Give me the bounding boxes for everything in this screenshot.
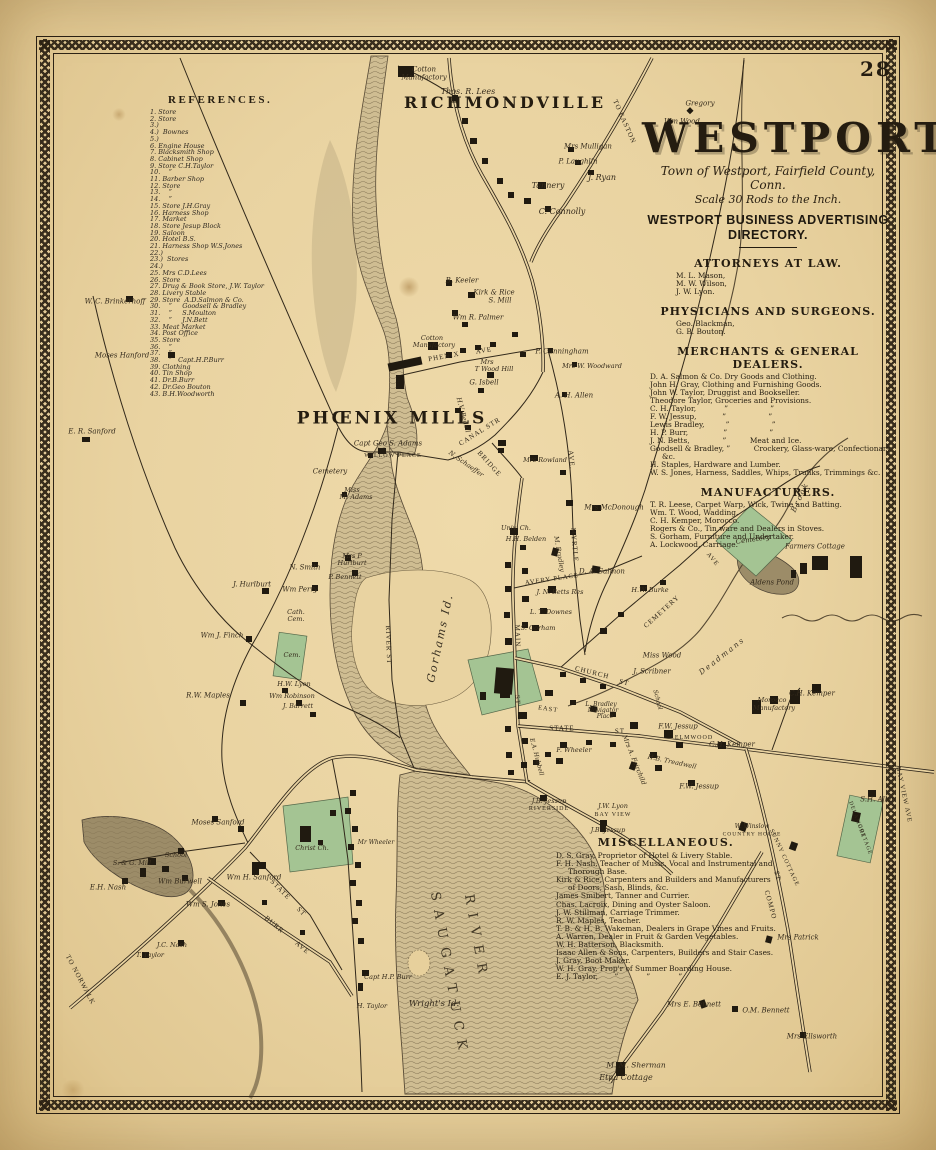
page-number: 28 — [860, 57, 892, 81]
reference-item: 23.) Stores — [150, 256, 350, 263]
map-label: Mrs Mulligan — [564, 144, 612, 151]
map-label: Etna Cottage — [599, 1074, 653, 1082]
directory-entry: A. Lockwood, Carriage. — [650, 541, 894, 549]
map-label: S. Gorham — [521, 625, 556, 632]
map-label: MAIN — [513, 625, 521, 648]
references-block: REFERENCES. 1. Store2. Store3.)4.) Bowne… — [150, 94, 350, 397]
map-label: M. M. Sherman — [606, 1061, 665, 1069]
miscellaneous-heading: MISCELLANEOUS. — [556, 836, 776, 849]
map-label: Kirk & Rice — [473, 290, 514, 297]
map-label: ST — [295, 906, 307, 918]
map-label: Gorhams Id. — [425, 592, 455, 683]
map-label: RIVER ST — [384, 625, 392, 664]
map-label: H.H. Belden — [506, 536, 546, 543]
map-label: Cem. — [283, 652, 300, 659]
map-label: School — [651, 689, 662, 710]
references-heading: REFERENCES. — [168, 94, 350, 106]
map-label: PHENIX — [428, 351, 460, 363]
map-label: ST — [513, 695, 520, 705]
section-heading: MERCHANTS & GENERAL DEALERS. — [642, 345, 894, 371]
map-label: E. R. Sanford — [68, 429, 115, 436]
map-label: CEMETERY — [643, 594, 681, 630]
section-heading: PHYSICIANS AND SURGEONS. — [642, 305, 894, 318]
map-label: Miss Wood — [643, 653, 681, 660]
map-subtitle: Town of Westport, Fairfield County, Conn… — [642, 164, 894, 192]
directory-section-manufacturers: MANUFACTURERS. T. R. Leese, Carpet Warp,… — [642, 486, 894, 549]
map-label: Christ Ch. — [295, 845, 329, 852]
reference-item: 12. Store — [150, 183, 350, 190]
map-label: Wright's Id. — [409, 1000, 459, 1009]
section-entries: D. A. Salmon & Co. Dry Goods and Clothin… — [642, 373, 894, 477]
map-label: Mrs Rowland — [523, 457, 567, 464]
map-label: N. Smith — [289, 565, 320, 572]
miscellaneous-block: MISCELLANEOUS. D. S. Gray, Proprietor of… — [556, 836, 776, 982]
map-label: Univ. Ch. — [501, 525, 531, 532]
miscellaneous-entry: E. J. Taylor, ” ” ” — [556, 973, 776, 981]
directory-section-merchants: MERCHANTS & GENERAL DEALERS. D. A. Salmo… — [642, 345, 894, 477]
map-label: RICHMONDVILLE — [404, 95, 606, 111]
map-label: BAY VIEW AVE — [894, 766, 912, 823]
divider-rule — [739, 247, 797, 248]
map-label: Mrs Ellsworth — [787, 1034, 837, 1041]
map-label: D. A. Salmon — [579, 569, 625, 576]
directory-entry: W. S. Jones, Harness, Saddles, Whips, Tr… — [650, 469, 894, 477]
map-label: RIVER — [462, 893, 490, 983]
reference-item: 2. Store — [150, 116, 350, 123]
map-label: O.M. Bennett — [742, 1008, 789, 1015]
map-label: J. N. Betts Res — [537, 589, 584, 596]
map-label: E.H. Nash — [90, 885, 126, 892]
map-label: AVE. — [567, 450, 576, 470]
map-label: H.W. Lyon — [277, 681, 310, 688]
map-label: Manufactory — [753, 705, 795, 712]
reference-item: 1. Store — [150, 109, 350, 116]
map-label: J. Ryan — [588, 174, 616, 182]
map-label: WILLOW PLACE — [364, 453, 421, 459]
map-label: ST — [618, 678, 630, 687]
map-label: CHURCH — [574, 665, 610, 680]
map-label: C.H. Kemper — [709, 742, 755, 749]
map-label: B. Keeler — [446, 278, 479, 285]
section-heading: ATTORNEYS AT LAW. — [642, 257, 894, 270]
reference-item: 13. ” — [150, 189, 350, 196]
map-label: Place — [597, 714, 613, 720]
map-label: STATE — [549, 726, 574, 733]
map-label: E.A. Hubbell — [528, 738, 544, 777]
map-label: Wm S. Jones — [186, 902, 230, 909]
reference-item: 36. ” — [150, 344, 350, 351]
map-scale: Scale 30 Rods to the Inch. — [642, 193, 894, 206]
map-label: C. Connolly — [539, 208, 586, 216]
map-label: P. Laughlin — [558, 159, 597, 166]
map-label: Cotton — [412, 67, 436, 74]
map-label: Cem. — [287, 616, 304, 623]
map-label: BAY VIEW — [595, 812, 632, 818]
map-label: Hurlburt — [337, 560, 366, 567]
map-label: AVERY PLACE — [525, 573, 580, 587]
map-label: TO NORWALK — [64, 954, 96, 1006]
map-label: Wm Perry — [282, 587, 317, 594]
map-label: H.B. Treadwell — [647, 754, 697, 771]
map-label: H.W. Burke — [631, 587, 668, 594]
map-label: Gregory — [685, 101, 714, 108]
map-label: AVE — [705, 552, 720, 568]
map-label: Wm J. Finch — [201, 633, 244, 640]
map-label: J. Hurlburt — [233, 582, 271, 589]
map-label: Morocco — [758, 697, 787, 704]
map-label: J. Scribner — [633, 669, 671, 676]
map-label: EAST — [538, 705, 559, 714]
map-label: Cemetery — [313, 469, 348, 476]
map-label: S.H. Allen — [860, 797, 896, 804]
map-label: COTTAGE — [856, 824, 872, 856]
map-title: WESTPORT — [642, 116, 894, 160]
map-label: Mrs E. Bennett — [667, 1002, 721, 1009]
map-label: TO EASTON — [611, 99, 637, 145]
map-label: AVE — [475, 346, 492, 356]
map-label: P. Bennett — [328, 574, 361, 581]
map-label: S. Mill — [489, 298, 512, 305]
map-label: Capt H.P. Burr — [364, 974, 412, 981]
map-label: Wm R. Palmer — [453, 315, 504, 322]
references-list: 1. Store2. Store3.)4.) Bownes5.)6. Engin… — [150, 109, 350, 397]
map-label: School — [165, 852, 187, 859]
map-label: M. Bradley — [553, 536, 566, 573]
map-label: Wm Robinson — [269, 693, 315, 700]
directory-heading-line1: WESTPORT BUSINESS ADVERTISING — [642, 213, 894, 228]
map-label: Manufactory — [401, 75, 446, 82]
map-label: Moses Hanford — [95, 353, 149, 360]
reference-item: 25. Mrs C.D.Lees — [150, 270, 350, 277]
directory-entry: Goodsell & Bradley, ” Crockery, Glass-wa… — [650, 445, 894, 461]
miscellaneous-entries: D. S. Gray, Proprietor of Hotel & Livery… — [556, 852, 776, 982]
section-entries: Geo. Blackman,G. B. Bouton. — [642, 320, 894, 336]
title-block: WESTPORT Town of Westport, Fairfield Cou… — [642, 116, 894, 549]
map-label: A. H. Allen — [555, 393, 593, 400]
map-label: ST — [615, 729, 625, 736]
reference-item: 43. B.H.Woodworth — [150, 391, 350, 398]
map-label: J.C. Nash — [157, 942, 187, 949]
map-label: MYRTLE — [569, 528, 579, 563]
directory-entry: J. W. Lyon. — [676, 288, 894, 296]
miscellaneous-entry: Kirk & Rice, Carpenters and Builders and… — [556, 876, 776, 892]
map-label: Aldens Pond — [750, 580, 794, 587]
map-label: ELMWOOD — [675, 735, 713, 741]
atlas-page: CottonManufactoryThos. R. LeesRICHMONDVI… — [0, 0, 936, 1150]
map-label: BURR — [263, 915, 285, 935]
map-label: Mrs Patrick — [777, 935, 818, 942]
map-label: L. T. Downes — [530, 609, 572, 616]
map-label: Tannery — [532, 182, 565, 190]
map-label: Mrs A. Fairchild — [621, 734, 647, 786]
section-entries: M. L. Mason,M. W. Wilson,J. W. Lyon. — [642, 272, 894, 296]
map-label: S. & G. Mill — [113, 860, 151, 867]
directory-section-physicians: PHYSICIANS AND SURGEONS. Geo. Blackman,G… — [642, 305, 894, 336]
map-label: T Wood Hill — [475, 366, 514, 373]
directory-heading-line2: DIRECTORY. — [642, 228, 894, 243]
reference-item: 4.) Bownes — [150, 129, 350, 136]
map-label: C.H. Kemper — [789, 691, 835, 698]
section-entries: T. R. Leese, Carpet Warp, Wick, Twine an… — [642, 501, 894, 549]
directory-section-attorneys: ATTORNEYS AT LAW. M. L. Mason,M. W. Wils… — [642, 257, 894, 296]
map-label: Mr Wheeler — [358, 840, 394, 846]
map-label: W. Winslow — [735, 824, 770, 830]
map-label: H. Taylor — [357, 1003, 387, 1010]
map-label: F. Wheeler — [556, 747, 591, 754]
map-label: J.B. Jessup — [591, 827, 626, 834]
map-label: F.W. Jessup — [658, 724, 698, 731]
section-heading: MANUFACTURERS. — [642, 486, 894, 499]
map-label: Mrs McDonough — [584, 505, 643, 512]
reference-item: 9. Store C.H.Taylor — [150, 163, 350, 170]
directory-entry: G. B. Bouton. — [676, 328, 894, 336]
map-label: Wm Burwell — [158, 879, 202, 886]
map-label: J.B. Jessup — [532, 798, 567, 805]
miscellaneous-entry: F. H. Nash, Teacher of Music, Vocal and … — [556, 860, 776, 876]
map-label: M. Adams — [339, 494, 372, 501]
map-label: J. Barrett — [283, 703, 313, 710]
map-label: Moses Sanford — [191, 820, 244, 827]
reference-item: 34. Post Office — [150, 330, 350, 337]
map-label: Capt Geo S. Adams — [354, 441, 422, 448]
map-label: Deadmans — [698, 636, 747, 676]
map-label: RIVERSIDE — [529, 806, 569, 812]
map-label: P. Cunningham — [535, 349, 588, 356]
map-label: T. Taylor — [136, 952, 164, 959]
reference-item: 21. Harness Shop W.S.Jones — [150, 243, 350, 250]
map-label: AVE — [293, 940, 310, 956]
map-label: G. Isbell — [469, 380, 498, 387]
map-label: F.W. Jessup — [679, 784, 719, 791]
map-label: R.W. Maples — [186, 693, 230, 700]
reference-item: 35. Store — [150, 337, 350, 344]
map-label: STATE — [269, 879, 292, 902]
map-label: Mrs W. Woodward — [562, 363, 622, 370]
map-label: J.W. Lyon — [598, 803, 628, 810]
map-label: Manufactory — [413, 342, 455, 349]
map-label: W. C. Brinkerhoff — [85, 299, 146, 306]
reference-item: 11. Barber Shop — [150, 176, 350, 183]
